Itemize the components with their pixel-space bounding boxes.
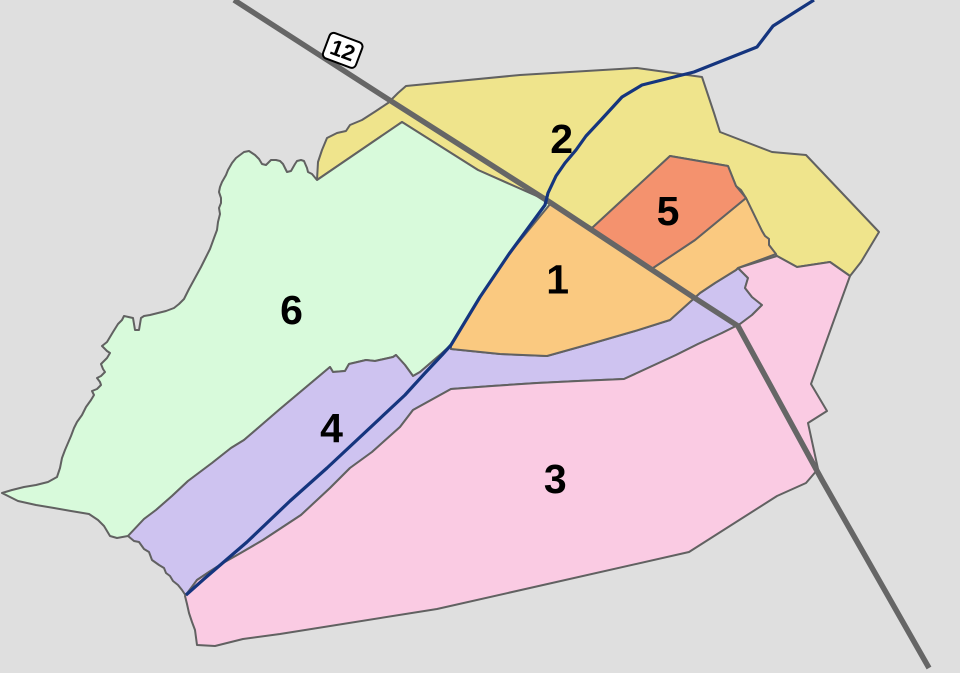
svg-text:6: 6 — [280, 287, 303, 333]
svg-text:4: 4 — [320, 405, 343, 451]
svg-text:3: 3 — [544, 456, 567, 502]
svg-text:5: 5 — [657, 188, 680, 234]
svg-text:1: 1 — [546, 257, 569, 303]
svg-text:2: 2 — [550, 116, 573, 162]
